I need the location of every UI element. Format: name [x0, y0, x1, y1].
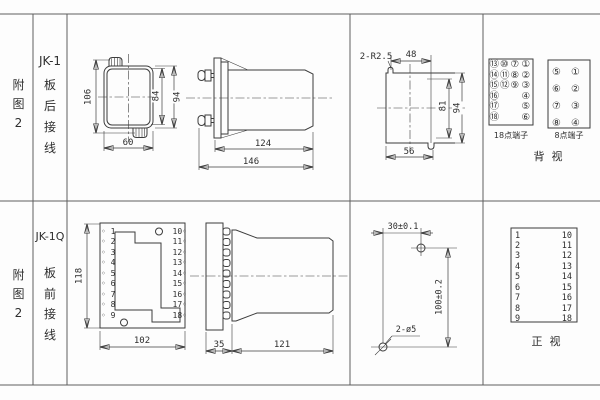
jk1q-left-terminal-numbers: ◦ 1 ◦ 2 ◦ 3 ◦ 4 ◦ 5 ◦ 6 ◦ 7 ◦ 8 ◦ 9 [101, 227, 115, 322]
dim-60-label: 60 [123, 138, 134, 149]
terminal-block-8pt-col1: ⑤ ⑥ ⑦ ⑧ [552, 64, 561, 133]
dim-121-label: 121 [274, 340, 290, 351]
dim-84-label: 84 [153, 90, 162, 103]
label-18pt-terminals: 18点端子 [494, 130, 528, 141]
dim-100-label: 100±0.2 [436, 278, 445, 316]
dim-81-label: 81 [440, 100, 449, 113]
figure-label-row1: 附 图 2 [11, 76, 26, 133]
label-8pt-terminals: 8点端子 [554, 130, 583, 141]
jk1q-side-view-drawing [190, 223, 348, 354]
jk1-front-view-drawing [93, 54, 177, 151]
terminal-block-18pt-col1: ⑬ ⑭ ⑮ ⑯ ⑰ ⑱ [490, 60, 500, 123]
terminal-block-18pt-col2: ⑩ ⑪ ⑫ [500, 60, 510, 92]
jk1-side-view-drawing [186, 58, 332, 170]
front-table-left-column: 1 2 3 4 5 6 7 8 9 [515, 231, 520, 325]
drill-hole-label: 2-ø5 [396, 325, 416, 336]
dim-56-label: 56 [404, 147, 415, 158]
terminal-block-18pt-col3: ⑦ ⑧ ⑨ [511, 60, 520, 92]
drawing-sheet: 附 图 2 JK-1 板 后 接 线 106 84 94 60 124 146 … [0, 0, 600, 400]
mount-label-front-wiring: 板 前 接 线 [33, 263, 67, 345]
rear-view-title: 背 视 [534, 151, 563, 162]
dim-35-label: 35 [214, 340, 225, 351]
terminal-block-8pt-col2: ① ② ③ ④ [571, 64, 580, 133]
model-label-jk1: JK-1 [33, 56, 67, 67]
dim-118-label: 118 [76, 267, 85, 285]
figure-label-row2: 附 图 2 [11, 266, 26, 323]
dim-146-label: 146 [243, 157, 259, 168]
front-table-right-column: 10 11 12 13 14 15 16 17 18 [552, 231, 572, 325]
model-label-jk1q: JK-1Q [33, 231, 67, 242]
front-view-title: 正 视 [532, 336, 561, 347]
cutout-slot-label: 2-R2.5 [360, 52, 393, 63]
terminal-block-18pt-col4: ① ② ③ ④ ⑤ ⑥ [522, 60, 531, 123]
dim-94-label: 94 [174, 91, 183, 104]
dim-106-label: 106 [85, 88, 94, 106]
dim-124-label: 124 [255, 139, 271, 150]
mount-label-rear-wiring: 板 后 接 线 [33, 75, 67, 159]
jk1q-right-terminal-numbers: 10◦ 11◦ 12◦ 13◦ 14◦ 15◦ 16◦ 17◦ 18◦ [166, 227, 187, 322]
dim-102-label: 102 [134, 336, 150, 347]
dim-30-label: 30±0.1 [388, 222, 419, 233]
dim-94-cutout-label: 94 [454, 102, 463, 115]
dim-48-label: 48 [406, 50, 417, 61]
